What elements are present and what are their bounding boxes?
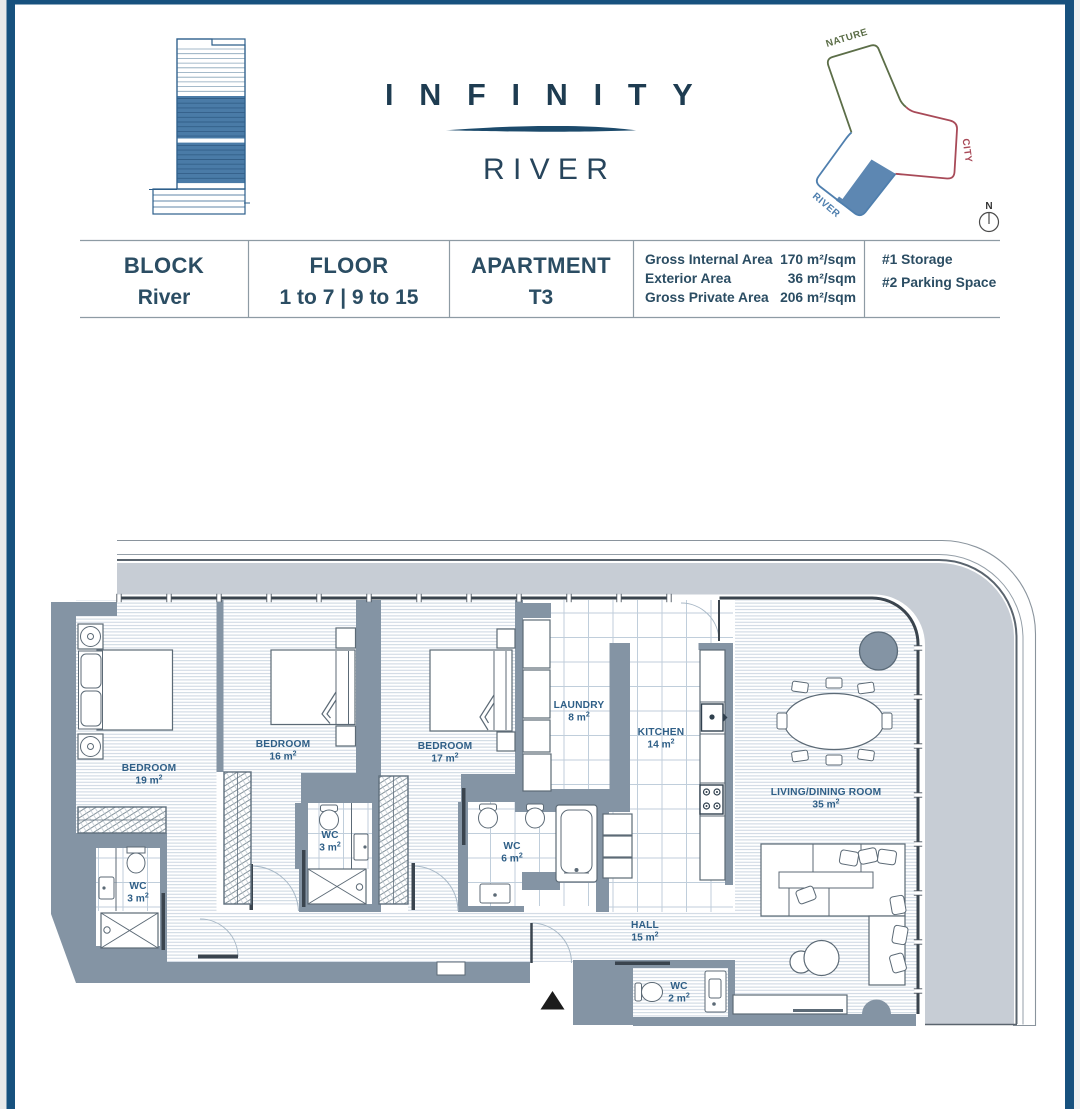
svg-text:WC: WC — [129, 881, 147, 892]
svg-text:APARTMENT: APARTMENT — [471, 253, 611, 278]
svg-text:16 m2: 16 m2 — [269, 751, 296, 763]
svg-text:35 m2: 35 m2 — [812, 799, 839, 811]
svg-text:#1 Storage: #1 Storage — [882, 252, 953, 267]
svg-text:14 m2: 14 m2 — [647, 739, 674, 751]
svg-text:WC: WC — [670, 981, 688, 992]
svg-text:INFINITY: INFINITY — [385, 78, 718, 112]
svg-text:1 to 7 | 9 to 15: 1 to 7 | 9 to 15 — [280, 286, 419, 309]
svg-text:WC: WC — [321, 830, 339, 841]
svg-text:KITCHEN: KITCHEN — [638, 727, 685, 738]
svg-text:36 m²/sqm: 36 m²/sqm — [788, 271, 856, 286]
svg-text:RIVER: RIVER — [483, 153, 616, 186]
svg-text:N: N — [985, 201, 992, 212]
svg-text:Gross Private Area: Gross Private Area — [645, 290, 769, 305]
svg-text:T3: T3 — [529, 286, 554, 309]
svg-text:206 m²/sqm: 206 m²/sqm — [780, 290, 856, 305]
svg-text:River: River — [138, 286, 191, 309]
svg-text:170 m²/sqm: 170 m²/sqm — [780, 252, 856, 267]
svg-text:LAUNDRY: LAUNDRY — [554, 700, 605, 711]
svg-text:Gross Internal Area: Gross Internal Area — [645, 252, 773, 267]
svg-text:Exterior Area: Exterior Area — [645, 271, 731, 286]
svg-text:BEDROOM: BEDROOM — [256, 739, 311, 750]
svg-text:HALL: HALL — [631, 920, 659, 931]
svg-text:17 m2: 17 m2 — [431, 753, 458, 765]
svg-text:#2 Parking Space: #2 Parking Space — [882, 275, 997, 290]
svg-text:LIVING/DINING ROOM: LIVING/DINING ROOM — [771, 787, 882, 798]
svg-text:BLOCK: BLOCK — [124, 253, 204, 278]
svg-text:BEDROOM: BEDROOM — [418, 741, 473, 752]
svg-text:WC: WC — [503, 841, 521, 852]
svg-text:19 m2: 19 m2 — [135, 775, 162, 787]
svg-text:15 m2: 15 m2 — [631, 932, 658, 944]
svg-text:FLOOR: FLOOR — [310, 253, 389, 278]
svg-text:BEDROOM: BEDROOM — [122, 763, 177, 774]
